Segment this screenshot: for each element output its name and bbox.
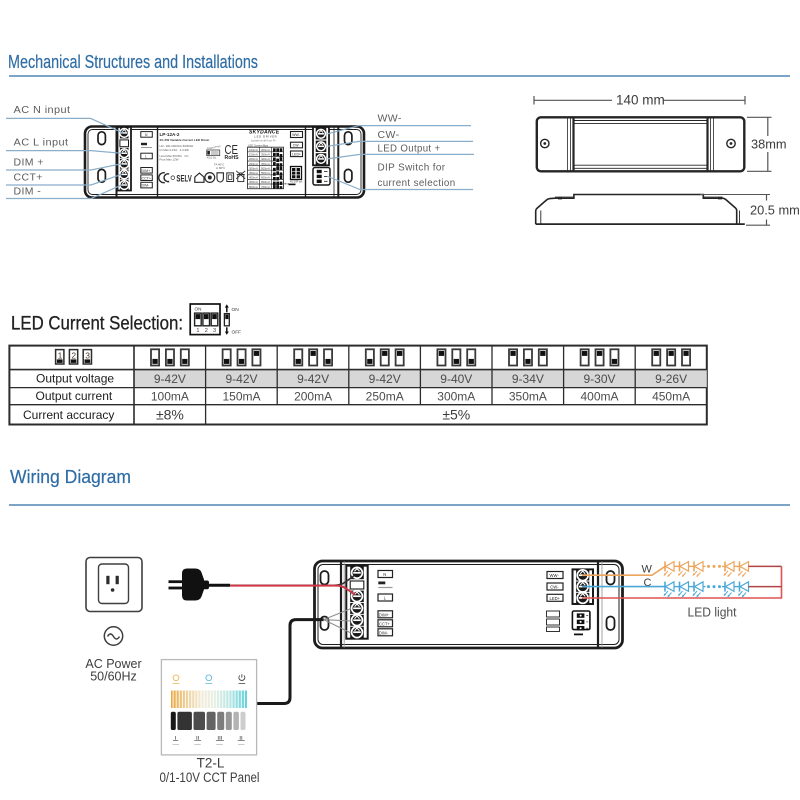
svg-text:9-34V: 9-34V (512, 372, 544, 386)
svg-text:T2-L: T2-L (197, 756, 225, 771)
svg-text:DIM -: DIM - (14, 186, 42, 198)
svg-text:500mA: 500mA (249, 185, 258, 189)
svg-text:CW-: CW- (550, 585, 559, 590)
svg-text:DIM-: DIM- (142, 184, 151, 188)
svg-text:OFF: OFF (232, 329, 242, 335)
svg-text:N: N (383, 572, 386, 577)
svg-text:9-42V: 9-42V (154, 372, 186, 386)
svg-text:350mA: 350mA (261, 153, 270, 157)
svg-text:450mA: 450mA (249, 180, 258, 184)
svg-text:300mA: 300mA (261, 148, 270, 152)
svg-text:2: 2 (205, 328, 208, 334)
svg-text:Iout/with on dif/4 use 4A: Iout/with on dif/4 use 4A (251, 140, 276, 143)
svg-text:SELV: SELV (176, 173, 192, 184)
svg-text:LED light: LED light (688, 605, 737, 620)
svg-text:DIP Switch for: DIP Switch for (378, 161, 446, 173)
svg-text:W: W (642, 564, 653, 576)
svg-text:Wiring Diagram: Wiring Diagram (10, 466, 131, 487)
svg-text:250mA: 250mA (249, 162, 258, 166)
svg-text:CCT+: CCT+ (142, 176, 152, 180)
svg-text:200mA: 200mA (249, 157, 258, 161)
svg-text:DIM+: DIM+ (379, 612, 390, 617)
svg-text:current selection: current selection (378, 177, 456, 189)
svg-text:38mm: 38mm (751, 136, 787, 151)
svg-text:Pout Max 12W: Pout Max 12W (160, 158, 179, 162)
svg-text:4/1-5W Variable Current LED Dr: 4/1-5W Variable Current LED Driver (160, 138, 211, 142)
svg-text:Mechanical Structures and Inst: Mechanical Structures and Installations (8, 51, 258, 72)
svg-text:250mA: 250mA (366, 389, 404, 403)
svg-text:WW-: WW- (550, 573, 560, 578)
svg-text:LED+: LED+ (550, 596, 561, 601)
svg-text:9-42V: 9-42V (225, 372, 257, 386)
svg-text:CW-: CW- (378, 129, 400, 141)
svg-text:450mA: 450mA (261, 162, 270, 166)
svg-text:550mA: 550mA (261, 171, 270, 175)
svg-text:400mA: 400mA (580, 389, 618, 403)
svg-text:400mA: 400mA (249, 176, 258, 180)
svg-text:1: 1 (58, 350, 63, 360)
svg-text:WW-: WW- (292, 133, 299, 137)
svg-text:150mA: 150mA (249, 153, 258, 157)
svg-text:150mA: 150mA (222, 389, 260, 403)
svg-text:450mA: 450mA (652, 389, 690, 403)
svg-text:Current accuracy: Current accuracy (23, 408, 114, 422)
svg-text:DIM +: DIM + (14, 157, 44, 169)
svg-text:9-30V: 9-30V (583, 372, 615, 386)
svg-text:±8%: ±8% (156, 406, 184, 422)
svg-text:400mA: 400mA (261, 157, 270, 161)
svg-text:200mA: 200mA (294, 389, 332, 403)
svg-text:LED Output +: LED Output + (378, 142, 441, 154)
svg-text:9-42V: 9-42V (297, 372, 329, 386)
svg-text:1: 1 (196, 328, 199, 334)
svg-text:N: N (145, 133, 148, 137)
svg-text:2: 2 (71, 350, 76, 360)
svg-text:LED Current Selection:: LED Current Selection: (11, 312, 183, 334)
svg-text:300mA: 300mA (437, 389, 475, 403)
svg-text:Iin Max 0.15A 2-3.6W: Iin Max 0.15A 2-3.6W (160, 148, 190, 152)
svg-text:Output voltage: Output voltage (36, 372, 114, 386)
svg-text:LP-12A-2: LP-12A-2 (160, 132, 180, 137)
svg-text:L: L (145, 155, 147, 159)
svg-text:0/1-10V CCT Panel: 0/1-10V CCT Panel (160, 770, 260, 785)
svg-text:LED+: LED+ (292, 152, 301, 156)
svg-text:3: 3 (213, 328, 216, 334)
svg-text:9-26V: 9-26V (655, 372, 687, 386)
svg-text:700mA: 700mA (261, 185, 270, 189)
svg-text:Output current: Output current (36, 389, 113, 403)
svg-text:±5%: ±5% (442, 406, 470, 422)
svg-text:600mA: 600mA (261, 176, 270, 180)
svg-text:CCT+: CCT+ (379, 621, 391, 626)
svg-text:CW-: CW- (293, 144, 300, 148)
svg-text:3: 3 (85, 350, 90, 360)
svg-text:ON: ON (232, 307, 240, 313)
svg-text:500mA: 500mA (261, 166, 270, 170)
svg-text:140 mm: 140 mm (616, 93, 665, 108)
svg-text:350mA: 350mA (249, 171, 258, 175)
svg-text:WW-: WW- (378, 112, 402, 124)
svg-text:ON: ON (195, 307, 202, 312)
svg-text:AC L input: AC L input (14, 137, 69, 149)
svg-text:CCT+: CCT+ (14, 172, 43, 184)
svg-text:20.5 mm: 20.5 mm (750, 202, 800, 217)
svg-text:RoHS: RoHS (225, 155, 240, 161)
svg-text:9-40V: 9-40V (440, 372, 472, 386)
svg-text:350mA: 350mA (509, 389, 547, 403)
svg-text:100mA: 100mA (151, 389, 189, 403)
svg-text:4/2 DIP set: 4/2 DIP set (290, 180, 303, 183)
svg-text:650mA: 650mA (261, 180, 270, 184)
svg-text:AC N input: AC N input (14, 104, 71, 116)
svg-text:300mA: 300mA (249, 166, 258, 170)
svg-text:LED DRIVER: LED DRIVER (255, 134, 278, 138)
svg-text:50/60Hz: 50/60Hz (90, 670, 137, 684)
svg-text:DIM+: DIM+ (142, 169, 151, 173)
svg-text:tc 80°C: tc 80°C (216, 166, 225, 170)
svg-text:4/2(1-3)s: 4/2(1-3)s (207, 157, 217, 160)
svg-text:DIM-: DIM- (379, 630, 389, 635)
svg-text:100mA: 100mA (249, 148, 258, 152)
svg-text:9-42V: 9-42V (369, 372, 401, 386)
